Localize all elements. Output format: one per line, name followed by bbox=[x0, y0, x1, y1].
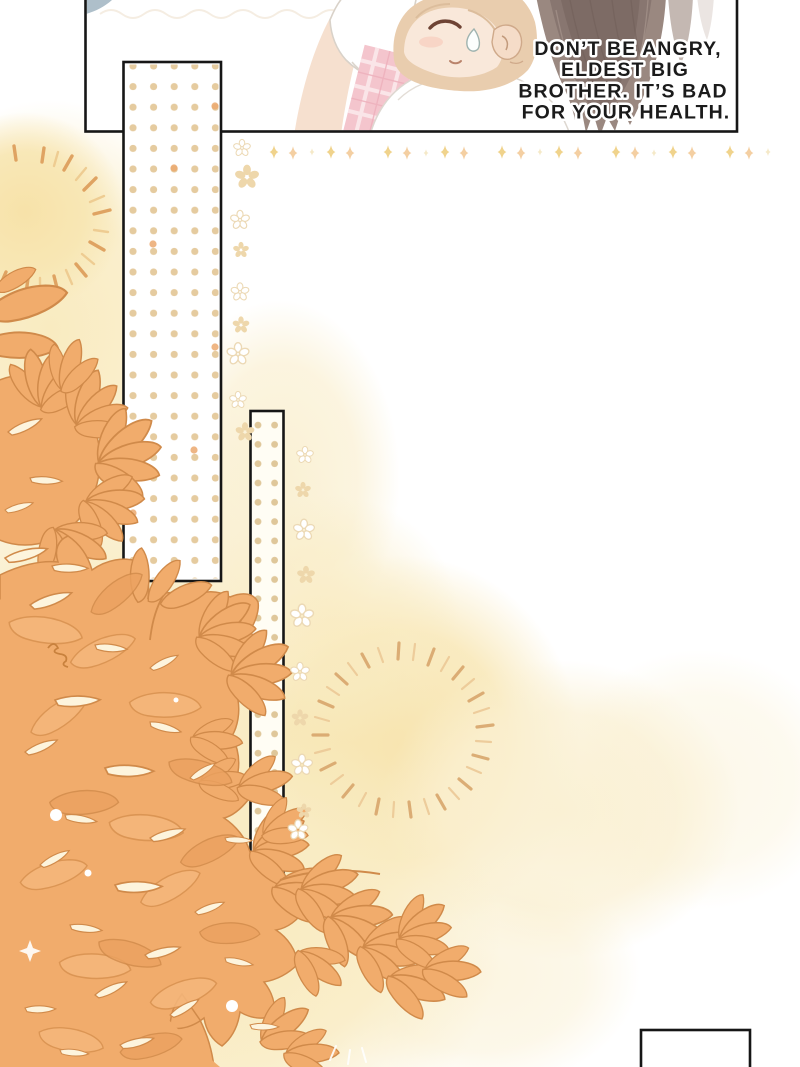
svg-text:BROTHER. IT’S BAD: BROTHER. IT’S BAD bbox=[518, 81, 727, 103]
svg-text:DON’T BE ANGRY,: DON’T BE ANGRY, bbox=[534, 38, 721, 60]
svg-text:FOR YOUR HEALTH.: FOR YOUR HEALTH. bbox=[522, 102, 731, 124]
svg-text:ELDEST BIG: ELDEST BIG bbox=[561, 59, 689, 81]
